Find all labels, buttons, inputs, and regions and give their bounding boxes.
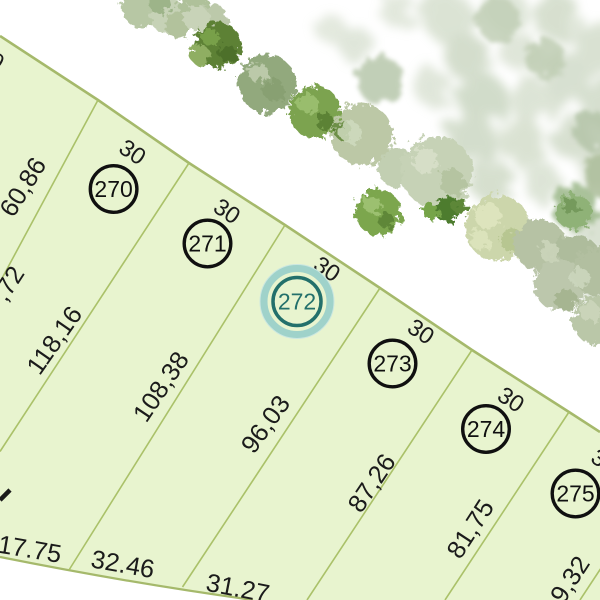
svg-text:275: 275 (556, 481, 594, 507)
svg-text:270: 270 (94, 176, 132, 202)
svg-text:272: 272 (278, 289, 316, 315)
svg-text:274: 274 (467, 416, 506, 442)
svg-text:271: 271 (188, 231, 226, 257)
svg-text:273: 273 (373, 351, 411, 377)
